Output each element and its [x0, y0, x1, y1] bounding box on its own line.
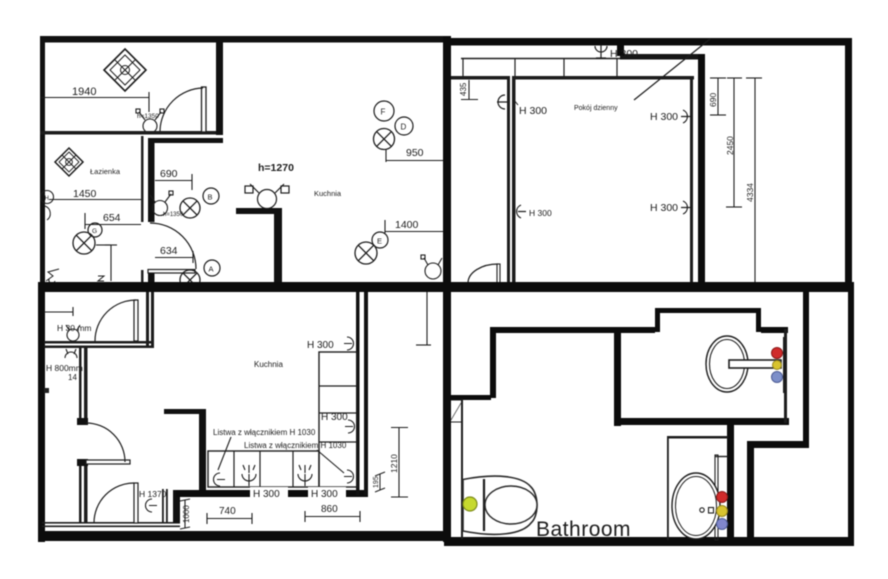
svg-text:A: A [209, 265, 214, 274]
svg-text:1450: 1450 [73, 188, 97, 200]
svg-text:435: 435 [459, 82, 468, 96]
svg-text:195: 195 [373, 476, 380, 488]
svg-text:1210: 1210 [389, 454, 399, 473]
svg-text:950: 950 [406, 147, 424, 159]
svg-text:E: E [377, 237, 382, 246]
svg-text:4334: 4334 [745, 183, 755, 202]
svg-text:h=1350: h=1350 [163, 212, 184, 218]
svg-text:Pokój dzienny: Pokój dzienny [574, 105, 618, 112]
svg-text:Kuchnia: Kuchnia [254, 360, 283, 369]
svg-text:h=1350: h=1350 [137, 113, 159, 120]
svg-text:Bathroom: Bathroom [536, 518, 631, 541]
svg-text:654: 654 [103, 212, 121, 224]
svg-text:H 300: H 300 [529, 208, 552, 218]
svg-text:H 300: H 300 [321, 412, 348, 423]
svg-text:H: H [45, 196, 49, 202]
svg-text:1400: 1400 [395, 219, 419, 231]
svg-text:H 300: H 300 [519, 105, 547, 117]
svg-text:H 300: H 300 [307, 340, 334, 351]
svg-text:H 800mm: H 800mm [46, 363, 83, 373]
svg-text:860: 860 [321, 504, 338, 515]
svg-text:H 300: H 300 [650, 202, 678, 214]
svg-text:1940: 1940 [72, 86, 96, 98]
svg-text:H 300: H 300 [650, 111, 678, 123]
svg-text:G: G [92, 228, 97, 235]
svg-text:634: 634 [160, 245, 178, 257]
svg-text:H 1370: H 1370 [139, 489, 167, 499]
svg-text:h=1270: h=1270 [258, 162, 294, 174]
svg-text:B: B [208, 193, 213, 202]
svg-text:H 30 mm: H 30 mm [57, 323, 91, 333]
svg-text:H 300: H 300 [311, 489, 338, 500]
svg-text:690: 690 [708, 93, 718, 107]
svg-text:Łazienka: Łazienka [90, 167, 121, 176]
svg-text:2450: 2450 [725, 136, 735, 155]
svg-text:690: 690 [160, 168, 178, 180]
svg-text:D: D [401, 123, 407, 132]
svg-text:14: 14 [68, 373, 77, 382]
svg-text:Kuchnia: Kuchnia [314, 189, 342, 198]
svg-text:1000: 1000 [182, 505, 191, 523]
svg-text:Listwa z włącznikiem H 1030: Listwa z włącznikiem H 1030 [213, 428, 316, 437]
svg-text:Listwa z włącznikiem H 1030: Listwa z włącznikiem H 1030 [244, 441, 347, 450]
svg-text:740: 740 [219, 506, 236, 517]
svg-text:F: F [381, 108, 386, 117]
svg-text:H 300: H 300 [610, 48, 638, 60]
svg-text:H 300: H 300 [253, 489, 280, 500]
